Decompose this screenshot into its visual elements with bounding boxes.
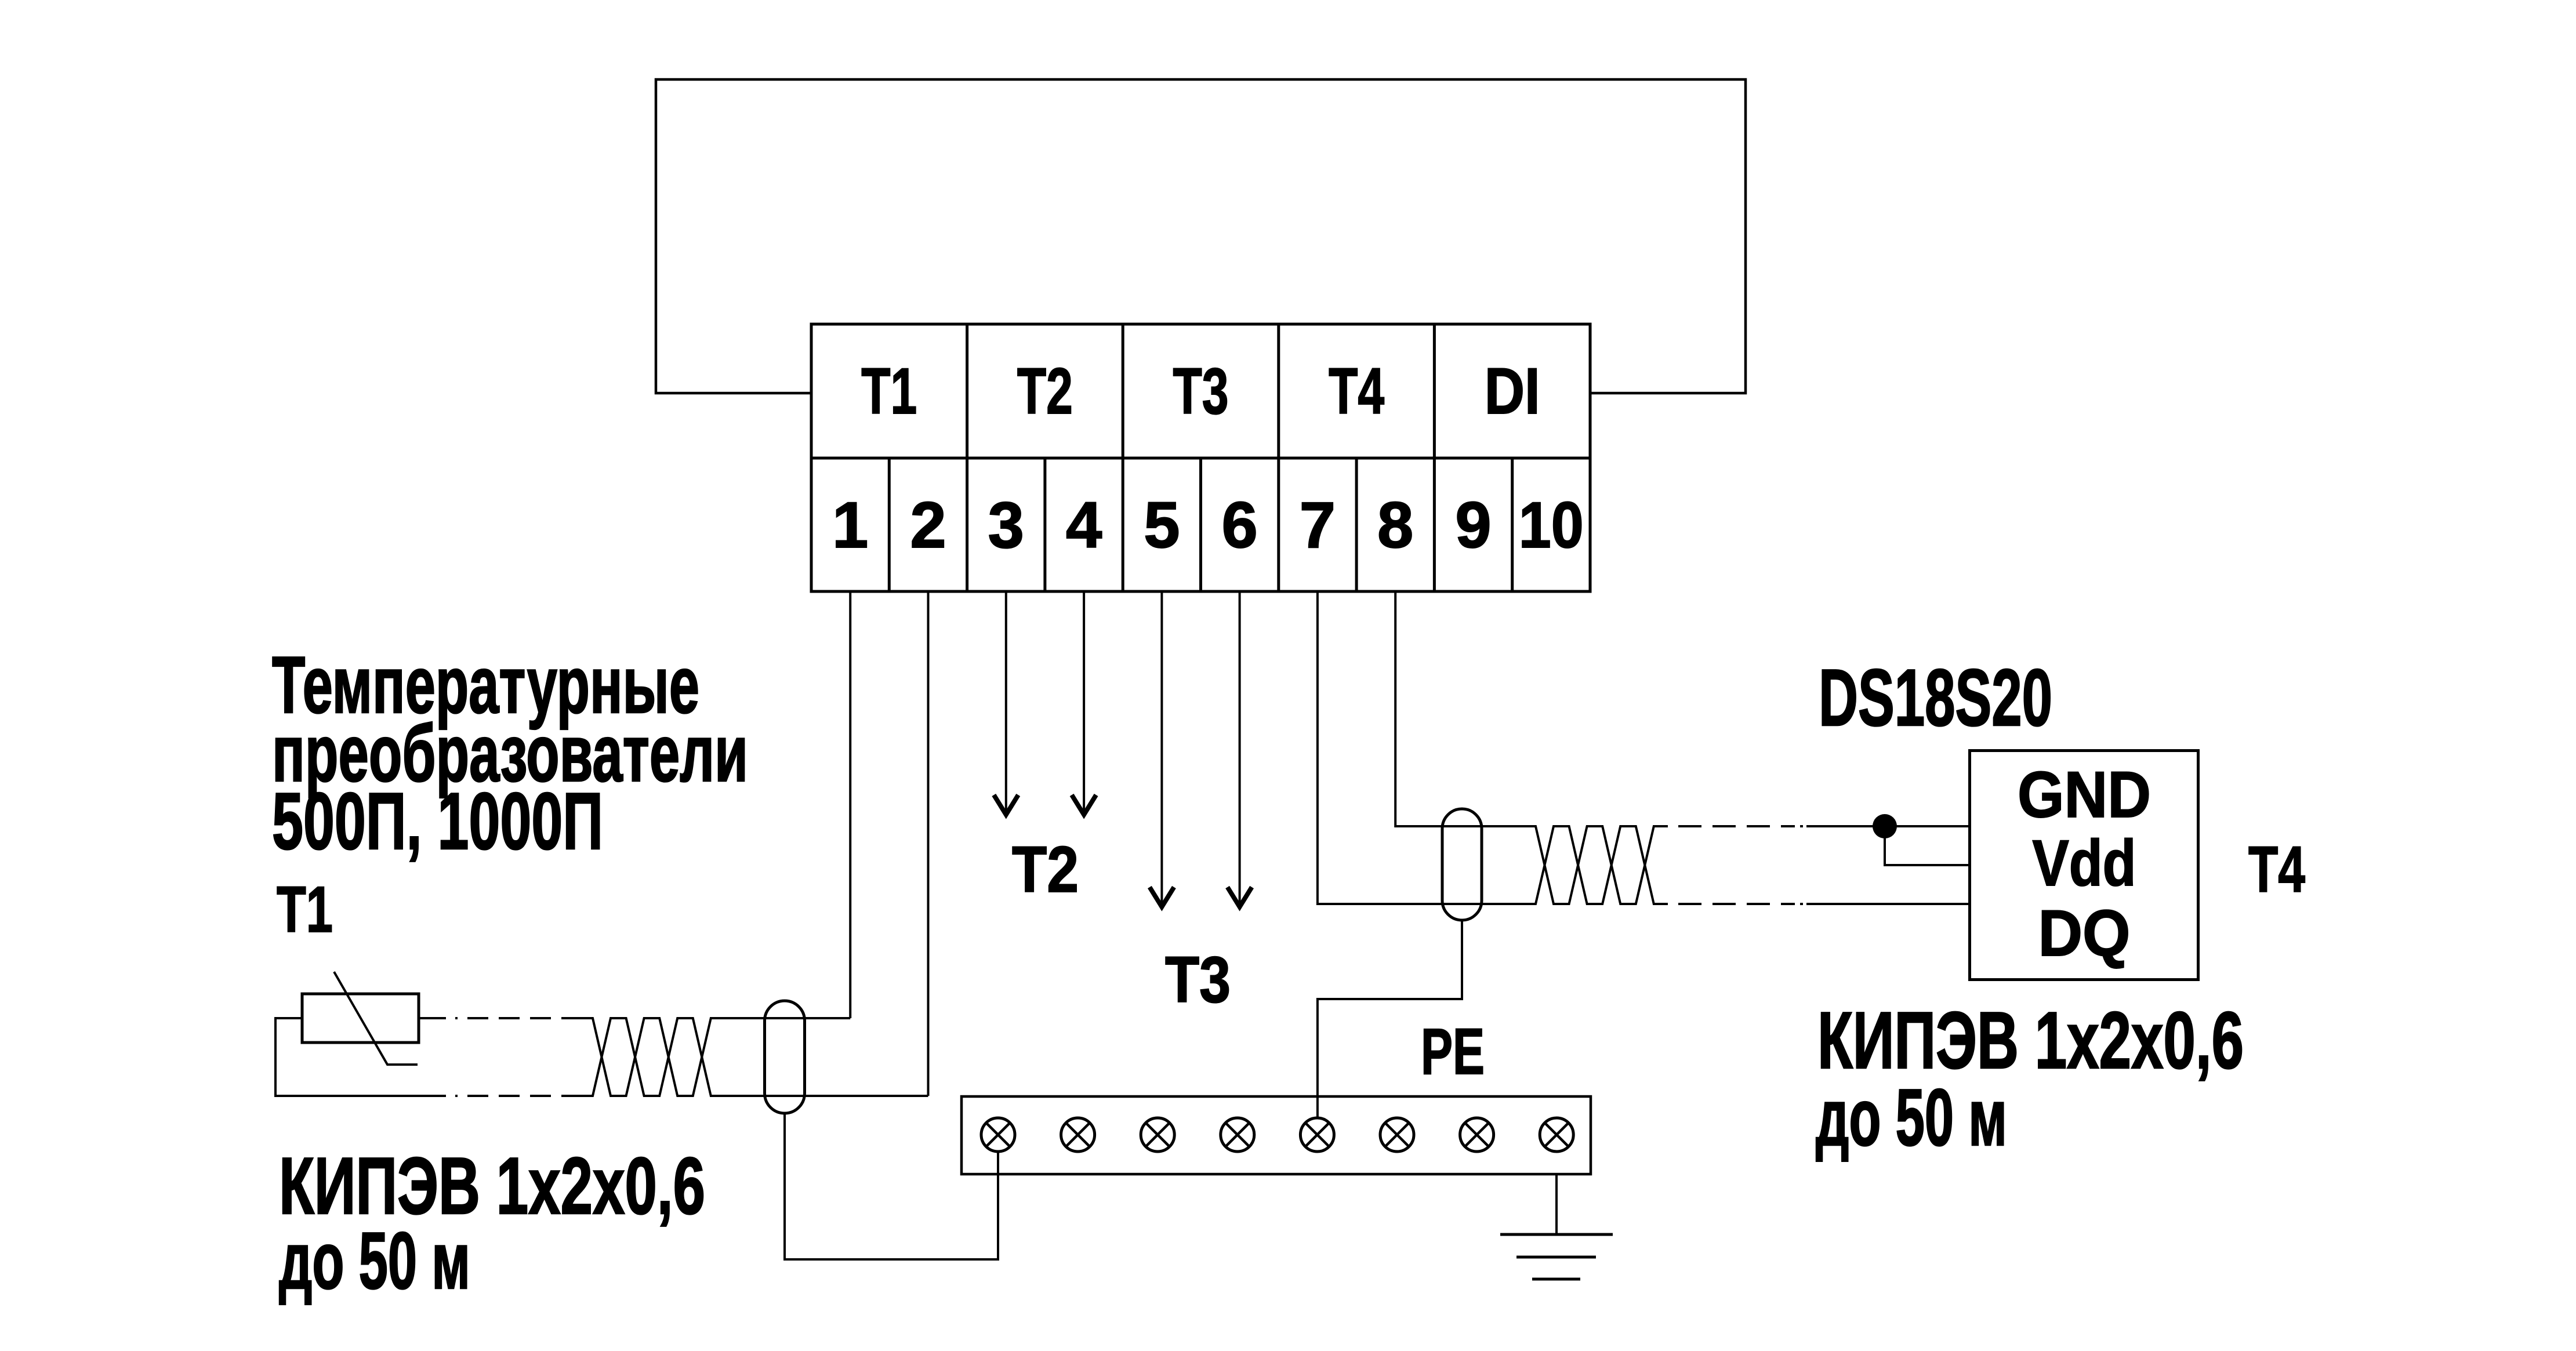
svg-text:4: 4 [1066,489,1102,561]
svg-text:DS18S20: DS18S20 [1819,653,2052,743]
svg-text:Т1: Т1 [861,355,917,427]
svg-text:Т3: Т3 [1173,355,1229,427]
svg-text:10: 10 [1519,489,1584,561]
svg-text:DI: DI [1485,355,1540,427]
svg-text:Vdd: Vdd [2033,827,2136,899]
svg-text:PE: PE [1421,1015,1485,1088]
svg-text:до 50 м: до 50 м [279,1216,470,1306]
svg-text:Т4: Т4 [2248,833,2305,906]
svg-text:Т2: Т2 [1017,355,1073,427]
svg-text:Т1: Т1 [277,873,333,946]
svg-text:Т2: Т2 [1012,833,1079,906]
svg-text:9: 9 [1455,489,1491,561]
svg-text:Т3: Т3 [1165,943,1231,1016]
svg-text:3: 3 [988,489,1024,561]
svg-text:до 50 м: до 50 м [1816,1073,2007,1163]
svg-text:1: 1 [832,489,868,561]
svg-text:2: 2 [910,489,946,561]
svg-text:GND: GND [2018,758,2151,831]
svg-text:DQ: DQ [2038,897,2131,969]
svg-text:6: 6 [1221,489,1257,561]
svg-text:7: 7 [1300,489,1336,561]
svg-text:500П, 1000П: 500П, 1000П [272,776,603,866]
svg-text:8: 8 [1377,489,1413,561]
svg-text:5: 5 [1144,489,1180,561]
svg-text:Т4: Т4 [1329,355,1384,427]
svg-text:КИПЭВ 1х2х0,6: КИПЭВ 1х2х0,6 [1817,996,2244,1085]
